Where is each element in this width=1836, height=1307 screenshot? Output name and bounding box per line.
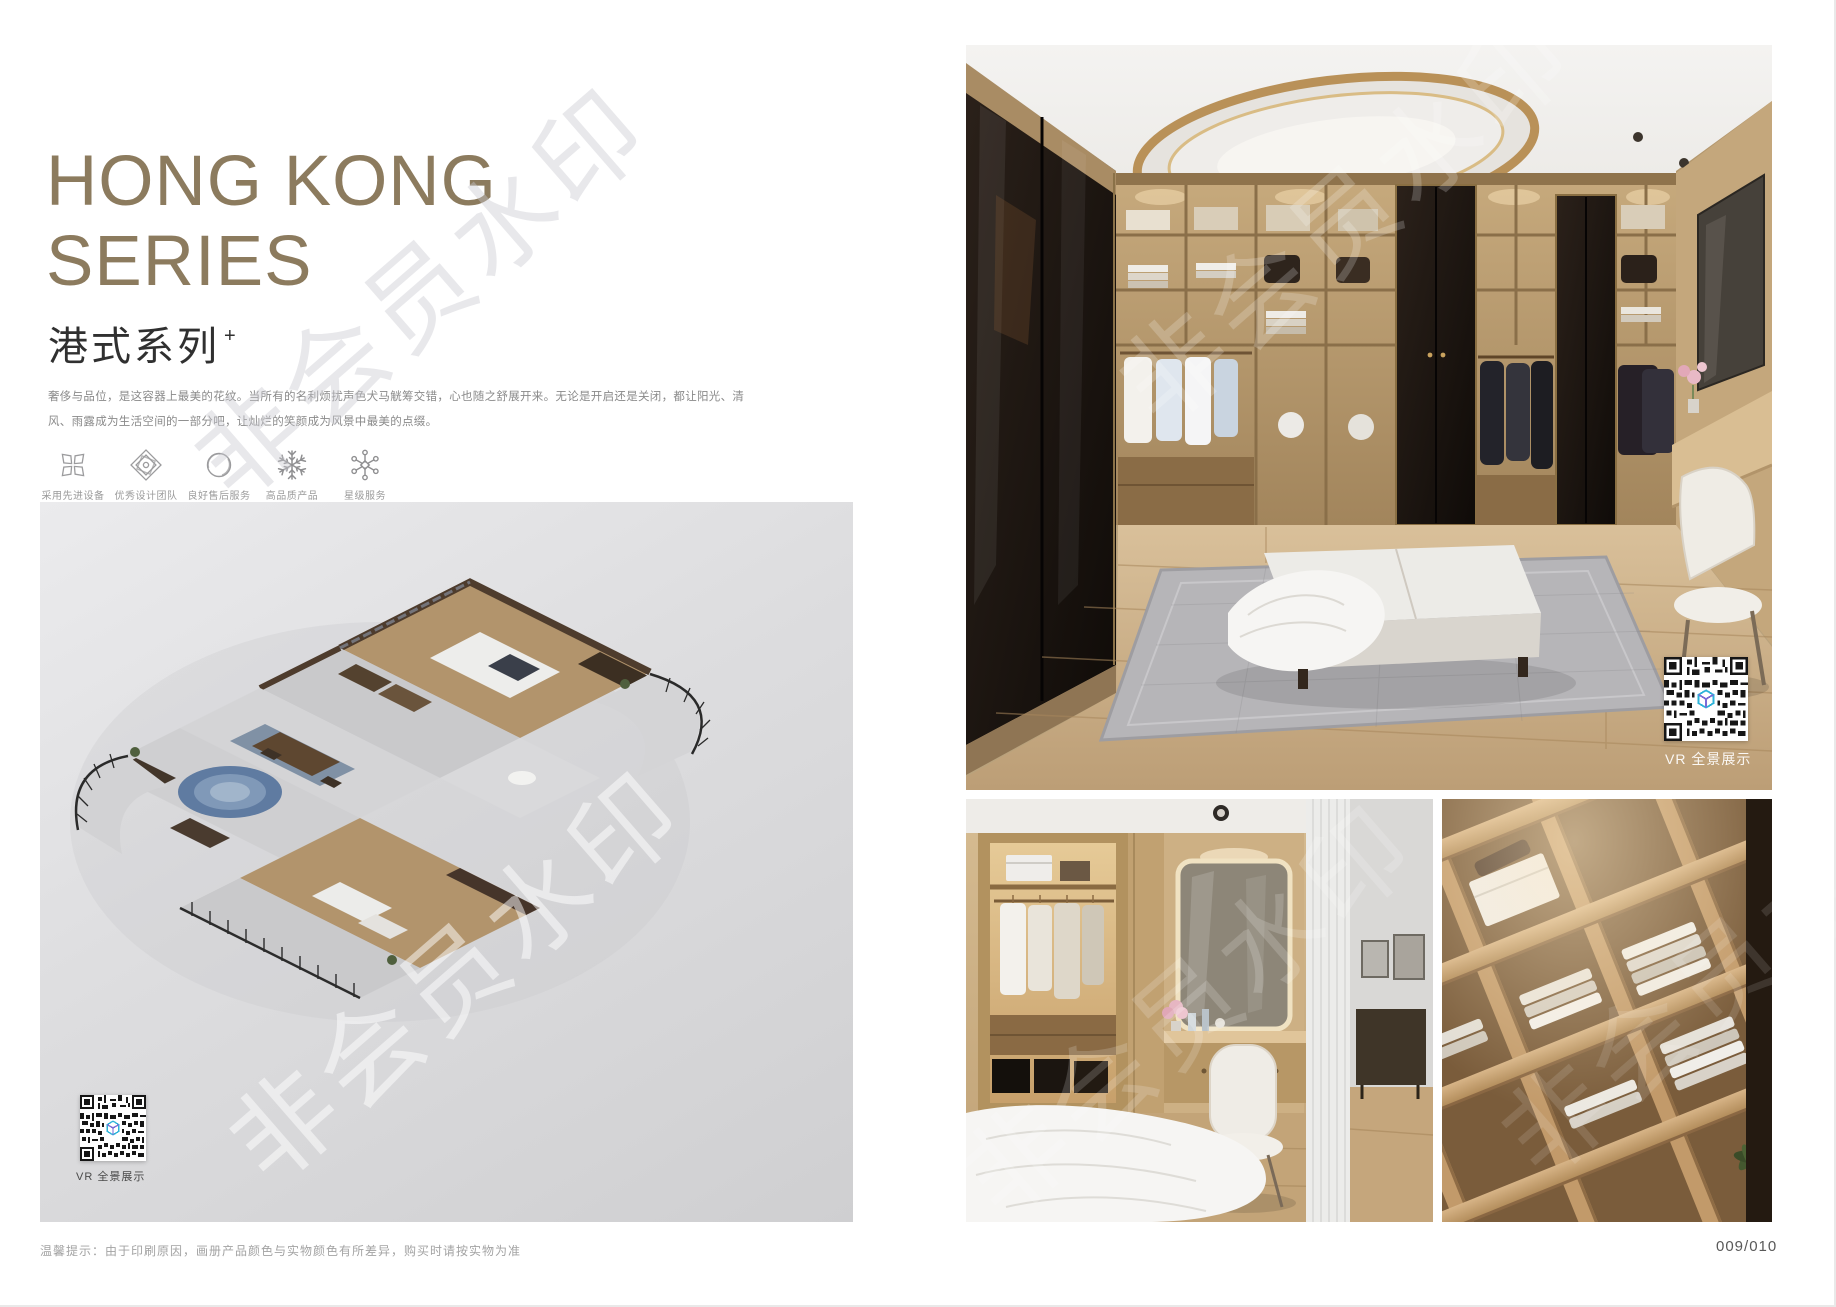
dressing-corner-photo [966, 799, 1433, 1222]
feature-list: 采用先进设备 优秀设计团队 [40, 448, 398, 502]
page-number: 009/010 [1716, 1238, 1777, 1255]
title-line-1: HONG KONG [46, 142, 497, 222]
series-subtitle: 港式系列+ [48, 314, 235, 372]
pinwheel-icon [40, 448, 106, 482]
feature-item: 良好售后服务 [186, 448, 252, 502]
vr-qr-code [80, 1095, 146, 1161]
shelf-closeup-photo [1442, 799, 1772, 1222]
subtitle-text: 港式系列 [48, 325, 220, 369]
page-title: HONG KONG SERIES [46, 142, 497, 302]
feature-item: 采用先进设备 [40, 448, 106, 502]
main-showcase-photo: VR 全景展示 [966, 45, 1772, 790]
catalog-page: HONG KONG SERIES 港式系列+ 奢侈与品位，是这容器上最美的花纹。… [0, 0, 1836, 1307]
vr-qr-code [1664, 657, 1748, 741]
swirl-ring-icon [186, 448, 252, 482]
feature-label: 高品质产品 [259, 487, 325, 502]
rosette-icon [113, 448, 179, 482]
footer-disclaimer: 温馨提示：由于印刷原因，画册产品颜色与实物颜色有所差异，购买时请按实物为准 [40, 1242, 521, 1259]
floor-plan-panel: VR 全景展示 [40, 502, 853, 1222]
feature-item: 高品质产品 [259, 448, 325, 502]
vr-caption: VR 全景展示 [1665, 749, 1751, 769]
series-description-line2: 风、雨露成为生活空间的一部分吧，让灿烂的笑颜成为风景中最美的点缀。 [48, 413, 437, 429]
snowflake-icon [259, 448, 325, 482]
feature-item: 优秀设计团队 [113, 448, 179, 502]
shelf-closeup-render [1442, 799, 1772, 1222]
series-description-line1: 奢侈与品位，是这容器上最美的花纹。当所有的名利烦扰声色犬马觥筹交错，心也随之舒展… [48, 388, 744, 404]
dressing-corner-render [966, 799, 1433, 1222]
title-line-2: SERIES [46, 222, 497, 302]
feature-label: 星级服务 [332, 487, 398, 502]
feature-label: 采用先进设备 [40, 487, 106, 502]
star-flake-icon [332, 448, 398, 482]
vr-caption: VR 全景展示 [76, 1168, 145, 1184]
feature-item: 星级服务 [332, 448, 398, 502]
walk-in-closet-render [966, 45, 1772, 790]
feature-label: 良好售后服务 [186, 487, 252, 502]
floor-plan-render [40, 502, 853, 1222]
feature-label: 优秀设计团队 [113, 487, 179, 502]
subtitle-plus-mark: + [224, 325, 239, 347]
